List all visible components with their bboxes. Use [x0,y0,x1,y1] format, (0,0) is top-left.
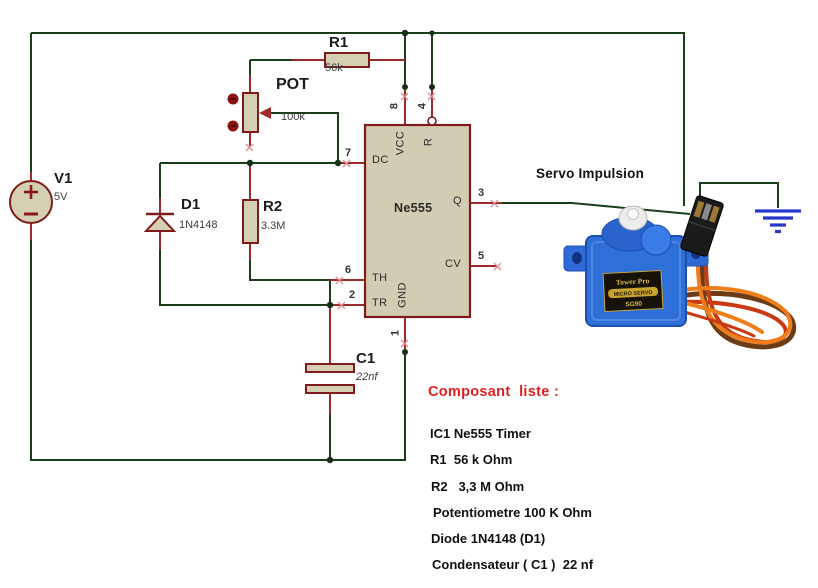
pin-number-7: 7 [345,148,351,159]
potentiometer-symbol [228,93,272,132]
pot-value-label: 100k [281,112,305,123]
c1-value-label: 22nf [356,372,377,383]
servo-impulsion-label: Servo Impulsion [536,167,644,181]
pin-number-1: 1 [391,330,402,336]
servo-image: Tower Pro MICRO SERVO SG90 [564,195,794,347]
ic-pin-r-label: R [424,138,435,146]
list-item-ic1: IC1 Ne555 Timer [430,427,531,440]
r1-ref-label: R1 [329,35,348,50]
ic-pin-dc-label: DC [372,155,389,166]
pin-number-2: 2 [349,290,355,301]
d1-value-label: 1N4148 [179,220,218,231]
servo-label: Tower Pro MICRO SERVO SG90 [603,271,663,312]
r2-value-label: 3.3M [261,221,285,232]
r2-ref-label: R2 [263,199,282,214]
pot-ref-label: POT [276,77,309,93]
schematic-canvas: Tower Pro MICRO SERVO SG90 [0,0,818,588]
servo-model-text: SG90 [625,301,642,309]
wire-d1-branch [160,250,330,305]
ic-pin-th-label: TH [372,273,387,284]
servo-brand-text: Tower Pro [616,276,650,287]
wire-r2-to-th [250,260,330,280]
reset-bubble-icon [428,117,436,125]
ic-pin-cv-label: CV [445,259,461,270]
v1-ref-label: V1 [54,171,72,186]
ic-pin-q-label: Q [453,196,462,207]
servo-connector [680,195,724,257]
pot-body [243,93,258,132]
circuit-schematic: Tower Pro MICRO SERVO SG90 V1 5V R1 56k … [0,0,818,588]
capacitor-symbol [306,364,354,393]
ic-pin-vcc-label: VCC [396,131,407,155]
pin-number-5: 5 [478,251,484,262]
d1-ref-label: D1 [181,197,200,212]
ic-pin-gnd-label: GND [398,282,409,308]
list-item-d1: Diode 1N4148 (D1) [431,532,545,545]
list-item-r1: R1 56 k Ohm [430,453,512,466]
list-item-r2: R2 3,3 M Ohm [431,480,524,493]
r1-value-label: 56k [325,63,343,74]
list-item-c1: Condensateur ( C1 ) 22 nf [432,558,593,571]
c1-ref-label: C1 [356,351,375,366]
component-list-title: Composant liste : [428,385,559,400]
ic-pin-tr-label: TR [372,298,387,309]
ic-name-label: Ne555 [394,202,432,215]
pin-number-3: 3 [478,188,484,199]
pin-number-6: 6 [345,265,351,276]
pot-wiper-arrow-icon [259,107,271,119]
diode-symbol [146,214,174,231]
wire-q-output [502,203,690,214]
ground-icon [755,211,801,232]
resistor-r2-body [243,200,258,243]
voltage-source-symbol [10,181,52,223]
v1-value-label: 5V [54,192,67,203]
pin-number-4: 4 [418,103,429,109]
pin-number-8: 8 [390,103,401,109]
ne555-ic-body [365,117,470,317]
list-item-pot: Potentiometre 100 K Ohm [433,506,592,519]
